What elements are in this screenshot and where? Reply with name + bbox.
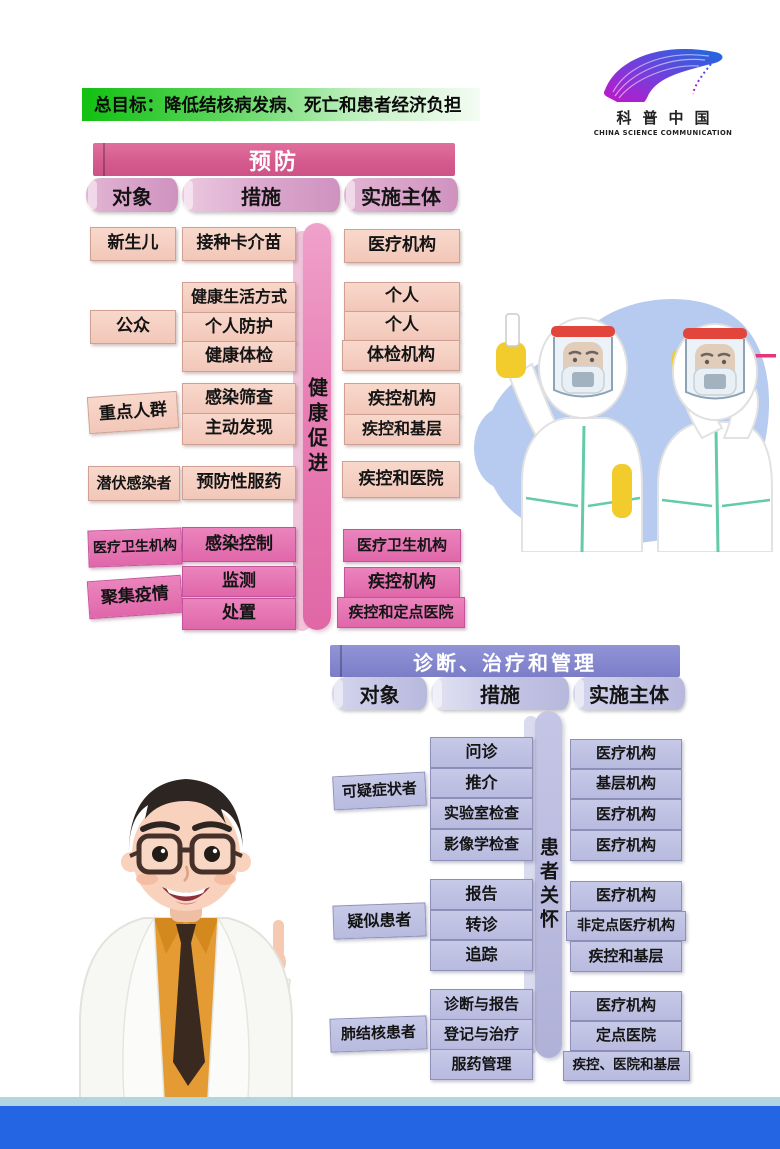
diagnosis-implementer-box-9: 疾控、医院和基层 <box>563 1051 690 1081</box>
prevention-measure-box-5: 主动发现 <box>182 413 296 445</box>
prevention-implementer-box-2: 个人 <box>344 311 460 341</box>
diagnosis-implementer-box-2: 医疗机构 <box>570 799 682 830</box>
diagnosis-measure-box-0: 问诊 <box>430 737 533 768</box>
prevention-measure-box-1: 健康生活方式 <box>182 282 296 313</box>
diagnosis-object-box-2: 肺结核患者 <box>329 1015 427 1052</box>
prevention-implementer-box-7: 医疗卫生机构 <box>343 529 461 562</box>
prevention-measure-box-8: 监测 <box>182 566 296 597</box>
diagnosis-object-box-0: 可疑症状者 <box>332 772 427 811</box>
prevention-object-box-3: 潜伏感染者 <box>88 466 180 501</box>
diagnosis-col-measures: 措施 <box>431 677 569 710</box>
diagnosis-measure-box-5: 转诊 <box>430 910 533 940</box>
diagnosis-side-capsule: 患者关怀 <box>535 711 562 1058</box>
footer-light-strip <box>0 1097 780 1106</box>
prevention-col-measures: 措施 <box>182 178 340 212</box>
diagnosis-implementer-box-1: 基层机构 <box>570 769 682 799</box>
diagnosis-object-box-1: 疑似患者 <box>332 902 426 939</box>
diagnosis-measure-box-3: 影像学检查 <box>430 829 533 861</box>
diagnosis-measure-box-7: 诊断与报告 <box>430 989 533 1020</box>
prevention-col-object: 对象 <box>86 178 178 212</box>
prevention-implementer-box-4: 疾控机构 <box>344 383 460 416</box>
prevention-measure-box-3: 健康体检 <box>182 341 296 372</box>
diagnosis-implementer-box-6: 疾控和基层 <box>570 941 682 972</box>
diagnosis-measure-box-1: 推介 <box>430 768 533 798</box>
prevention-implementer-box-1: 个人 <box>344 282 460 312</box>
diagnosis-col-object: 对象 <box>332 677 427 710</box>
tb-infographic-poster: 总目标：降低结核病发病、死亡和患者经济负担 科普中国 CHINA SCIENCE… <box>0 0 780 1149</box>
logo-swoosh-icon <box>583 40 743 102</box>
prevention-implementer-box-5: 疾控和基层 <box>344 414 460 445</box>
diagnosis-measure-box-8: 登记与治疗 <box>430 1019 533 1050</box>
footer-blue-bar <box>0 1106 780 1149</box>
prevention-measure-box-2: 个人防护 <box>182 312 296 343</box>
diagnosis-implementer-box-8: 定点医院 <box>570 1021 682 1051</box>
diagnosis-measure-box-9: 服药管理 <box>430 1049 533 1080</box>
diagnosis-col-implementer: 实施主体 <box>573 677 685 710</box>
logo: 科普中国 CHINA SCIENCE COMMUNICATION <box>583 40 743 137</box>
prevention-object-box-0: 新生儿 <box>90 227 176 261</box>
logo-en-text: CHINA SCIENCE COMMUNICATION <box>583 129 743 137</box>
diagnosis-measure-box-6: 追踪 <box>430 940 533 971</box>
ppe-workers-illustration <box>466 286 780 552</box>
prevention-side-capsule: 健康促进 <box>303 223 331 630</box>
doctor-illustration <box>52 766 320 1098</box>
prevention-object-box-5: 聚集疫情 <box>87 575 183 619</box>
diagnosis-implementer-box-5: 非定点医疗机构 <box>566 911 686 941</box>
prevention-measure-box-0: 接种卡介苗 <box>182 227 296 261</box>
prevention-measure-box-7: 感染控制 <box>182 527 296 562</box>
prevention-object-box-2: 重点人群 <box>87 391 179 434</box>
prevention-object-box-4: 医疗卫生机构 <box>87 527 182 567</box>
prevention-implementer-box-6: 疾控和医院 <box>342 461 460 498</box>
diagnosis-section-title: 诊断、治疗和管理 <box>330 645 680 677</box>
prevention-implementer-box-0: 医疗机构 <box>344 229 460 263</box>
diagnosis-implementer-box-7: 医疗机构 <box>570 991 682 1021</box>
goal-banner: 总目标：降低结核病发病、死亡和患者经济负担 <box>82 88 480 121</box>
prevention-implementer-box-3: 体检机构 <box>342 340 460 371</box>
diagnosis-measure-box-4: 报告 <box>430 879 533 910</box>
prevention-object-box-1: 公众 <box>90 310 176 344</box>
diagnosis-implementer-box-4: 医疗机构 <box>570 881 682 911</box>
prevention-measure-box-4: 感染筛查 <box>182 383 296 414</box>
prevention-section-title: 预防 <box>93 143 455 176</box>
prevention-implementer-box-8: 疾控机构 <box>344 567 460 598</box>
diagnosis-measure-box-2: 实验室检查 <box>430 798 533 829</box>
diagnosis-implementer-box-0: 医疗机构 <box>570 739 682 769</box>
prevention-measure-box-6: 预防性服药 <box>182 466 296 500</box>
logo-cn-text: 科普中国 <box>583 107 743 128</box>
prevention-measure-box-9: 处置 <box>182 598 296 630</box>
prevention-implementer-box-9: 疾控和定点医院 <box>337 597 465 628</box>
prevention-col-implementer: 实施主体 <box>344 178 458 212</box>
diagnosis-implementer-box-3: 医疗机构 <box>570 830 682 861</box>
